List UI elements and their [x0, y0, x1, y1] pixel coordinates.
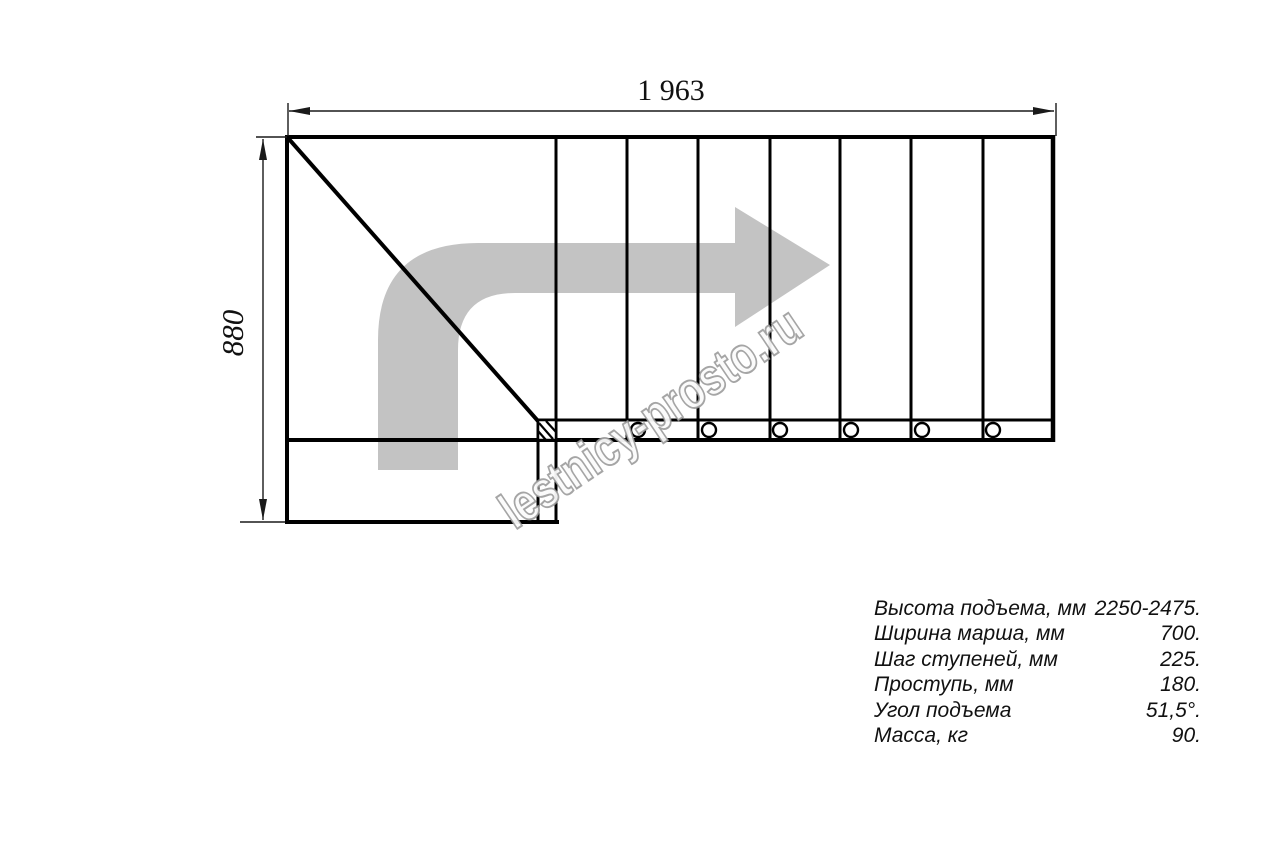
spec-value: 51,5°.	[1146, 698, 1201, 723]
baluster-circle	[844, 423, 858, 437]
spec-value: 90.	[1172, 723, 1201, 748]
spec-label: Проступь, мм	[874, 672, 1014, 697]
baluster-circles	[631, 423, 1000, 437]
spec-value: 2250-2475.	[1095, 596, 1201, 621]
arrowhead-down	[259, 499, 267, 520]
spec-row-mass: Масса, кг 90.	[874, 723, 1201, 748]
arrowhead-right	[1033, 107, 1054, 115]
spec-value: 225.	[1160, 647, 1201, 672]
spec-row-tread: Проступь, мм 180.	[874, 672, 1201, 697]
spec-row-step: Шаг ступеней, мм 225.	[874, 647, 1201, 672]
top-dimension	[288, 103, 1056, 136]
spec-row-angle: Угол подъема 51,5°.	[874, 698, 1201, 723]
arrowhead-left	[289, 107, 310, 115]
top-dimension-label: 1 963	[637, 74, 705, 107]
spec-label: Высота подъема, мм	[874, 596, 1086, 621]
direction-arrow	[378, 207, 830, 470]
spec-value: 180.	[1160, 672, 1201, 697]
stair-plan-page: 1 963 880 lestnicy-prosto.ru Высота подъ…	[0, 0, 1280, 853]
baluster-circle	[773, 423, 787, 437]
newel-post	[538, 420, 556, 440]
spec-row-height: Высота подъема, мм 2250-2475.	[874, 596, 1201, 621]
spec-label: Масса, кг	[874, 723, 968, 748]
baluster-circle	[915, 423, 929, 437]
spec-table: Высота подъема, мм 2250-2475. Ширина мар…	[874, 596, 1201, 748]
baluster-circle	[702, 423, 716, 437]
spec-value: 700.	[1160, 621, 1201, 646]
spec-row-width: Ширина марша, мм 700.	[874, 621, 1201, 646]
arrowhead-up	[259, 139, 267, 160]
spec-label: Угол подъема	[874, 698, 1011, 723]
left-dimension-label: 880	[215, 309, 250, 356]
spec-label: Ширина марша, мм	[874, 621, 1065, 646]
baluster-circle	[631, 423, 645, 437]
spec-label: Шаг ступеней, мм	[874, 647, 1058, 672]
baluster-circle	[986, 423, 1000, 437]
